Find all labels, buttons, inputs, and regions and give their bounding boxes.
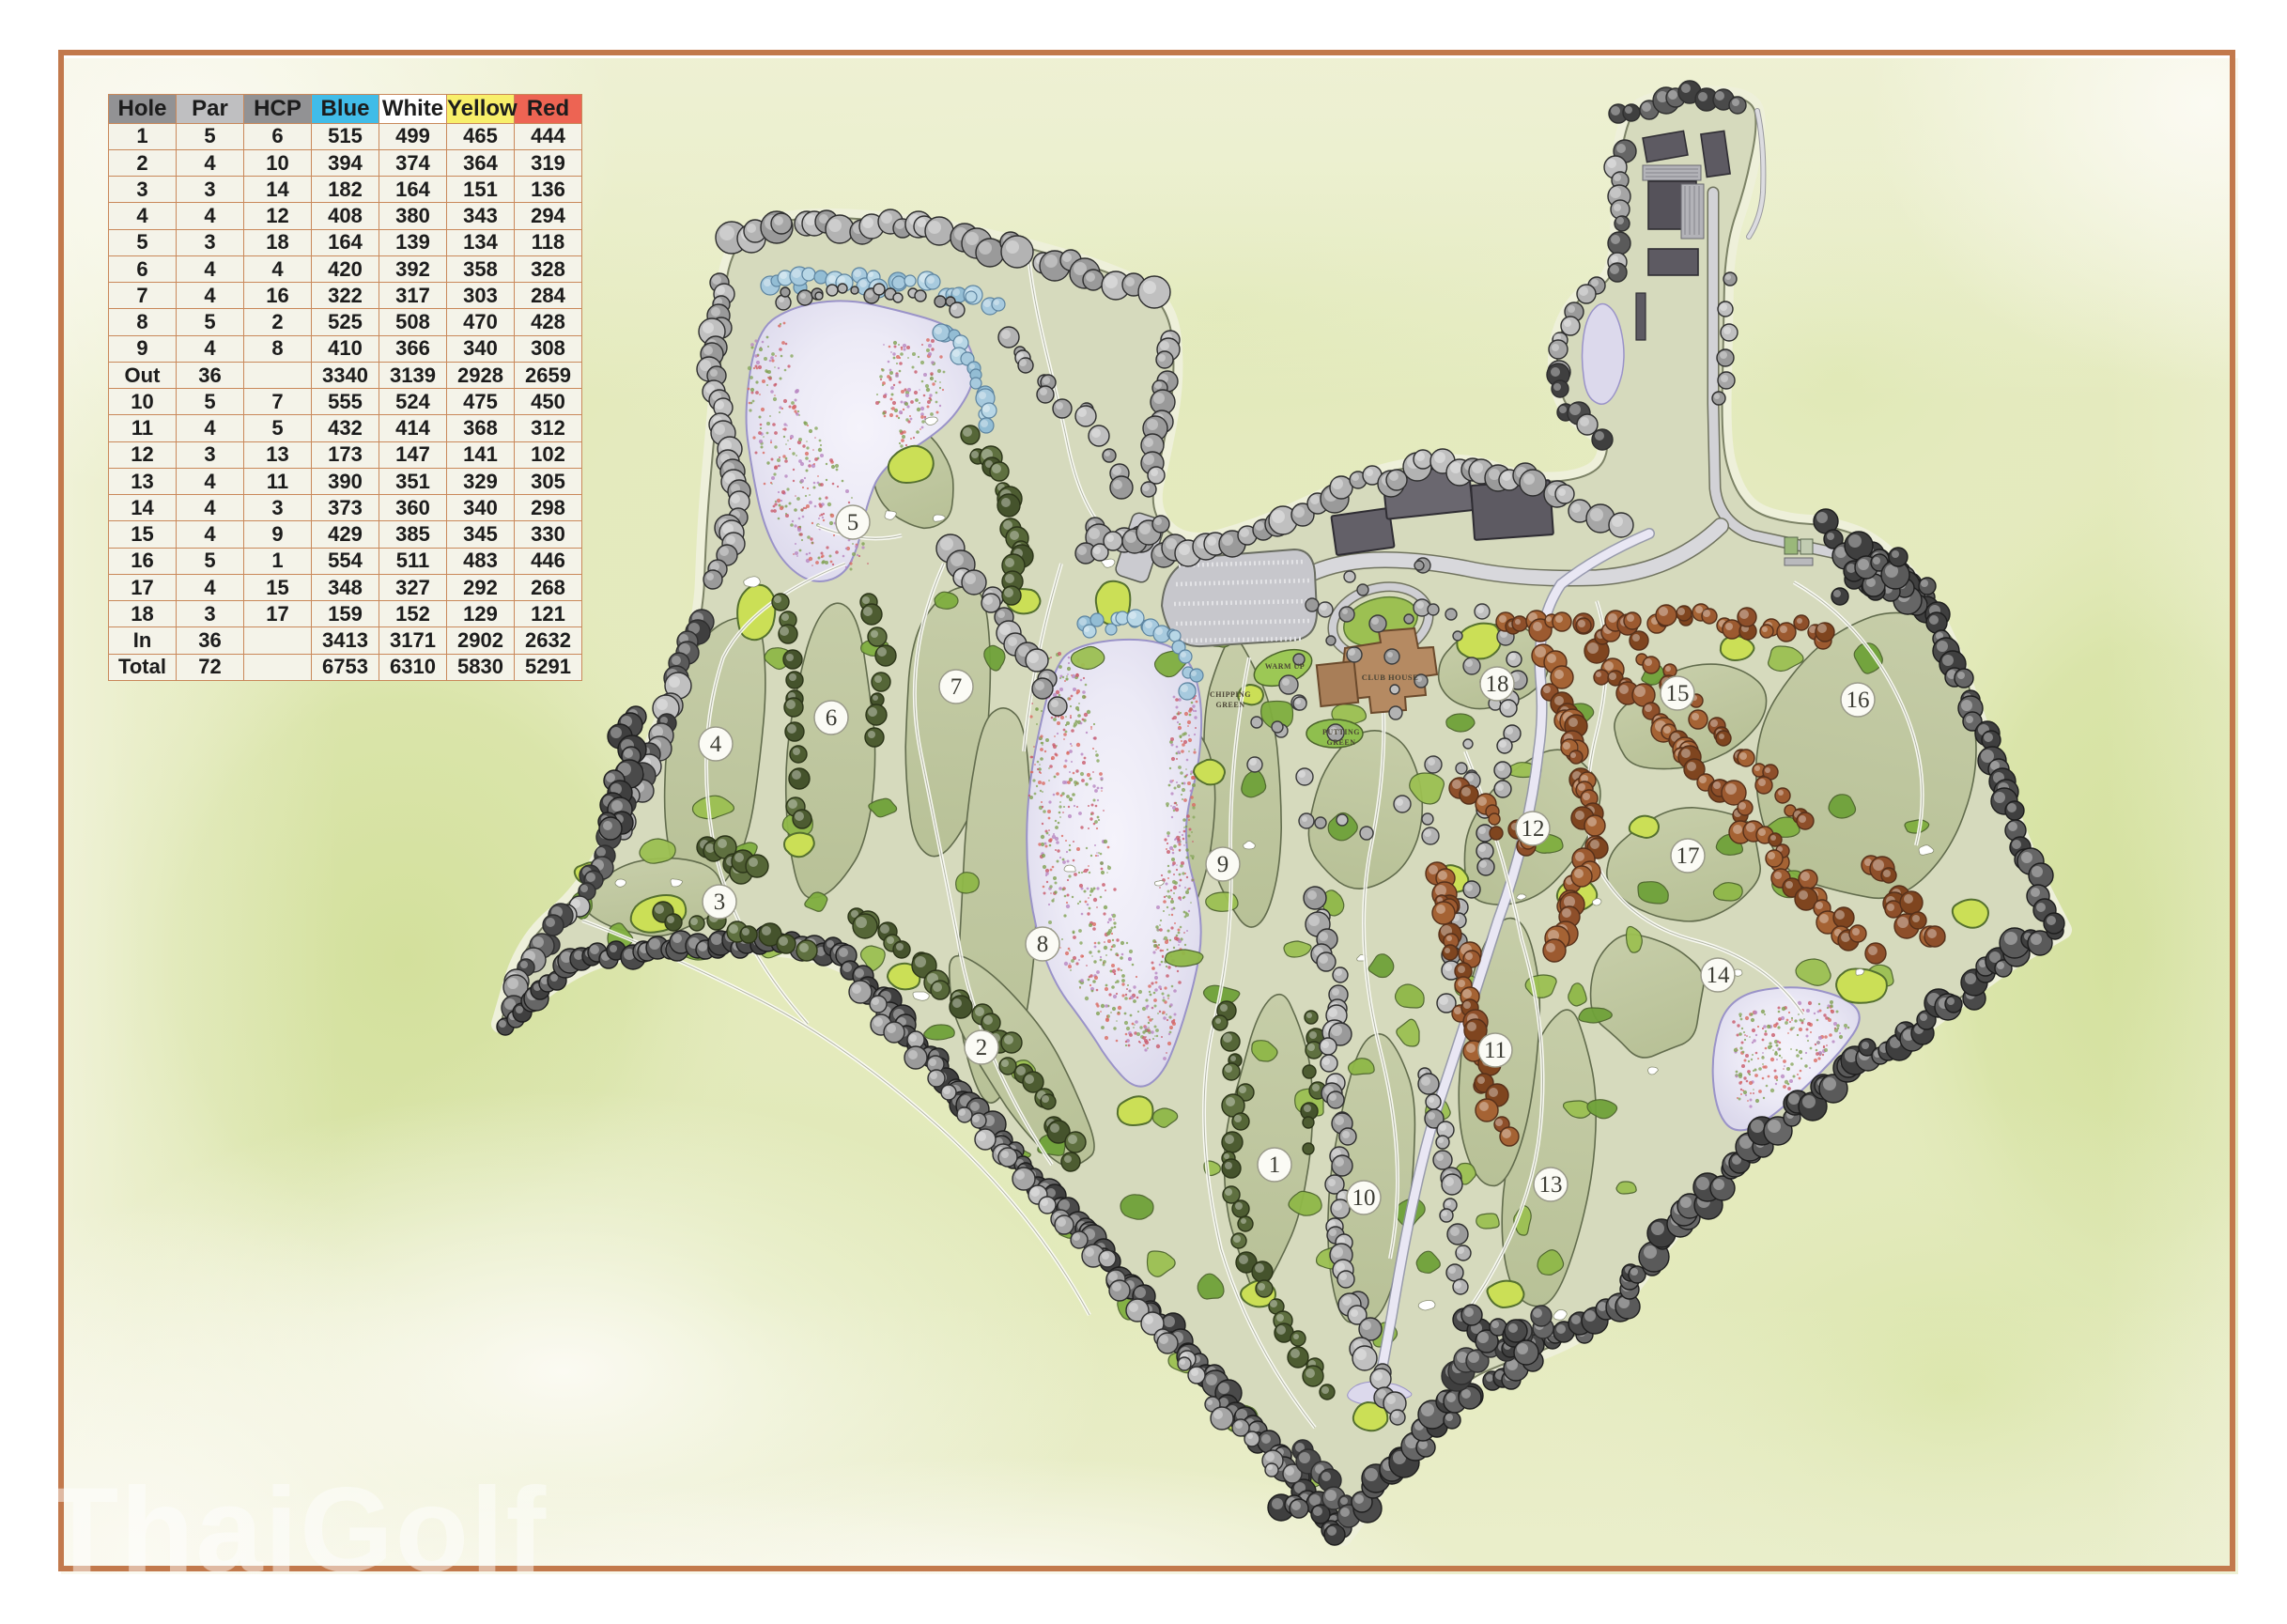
svg-text:8: 8 xyxy=(1037,932,1049,957)
svg-text:6: 6 xyxy=(826,705,838,731)
svg-text:2: 2 xyxy=(976,1035,988,1060)
svg-text:CLUB HOUSE: CLUB HOUSE xyxy=(1362,673,1419,682)
svg-text:PUTTING: PUTTING xyxy=(1322,728,1360,736)
svg-text:17: 17 xyxy=(1677,843,1700,869)
svg-text:9: 9 xyxy=(1217,852,1229,877)
svg-text:4: 4 xyxy=(710,732,722,757)
svg-text:1: 1 xyxy=(1269,1152,1281,1178)
svg-text:3: 3 xyxy=(714,889,726,915)
svg-text:5: 5 xyxy=(847,510,859,535)
svg-text:15: 15 xyxy=(1666,681,1690,706)
svg-text:7: 7 xyxy=(950,674,963,700)
svg-text:GREEN: GREEN xyxy=(1216,701,1245,709)
svg-text:16: 16 xyxy=(1847,688,1870,713)
svg-text:14: 14 xyxy=(1707,963,1731,988)
svg-text:GREEN: GREEN xyxy=(1327,738,1356,747)
svg-text:WARM UP: WARM UP xyxy=(1265,662,1305,671)
svg-text:12: 12 xyxy=(1522,816,1545,842)
svg-text:CHIPPING: CHIPPING xyxy=(1210,690,1251,699)
svg-text:11: 11 xyxy=(1484,1038,1507,1063)
svg-text:13: 13 xyxy=(1539,1172,1563,1198)
svg-text:18: 18 xyxy=(1486,672,1509,697)
svg-text:10: 10 xyxy=(1352,1185,1376,1211)
